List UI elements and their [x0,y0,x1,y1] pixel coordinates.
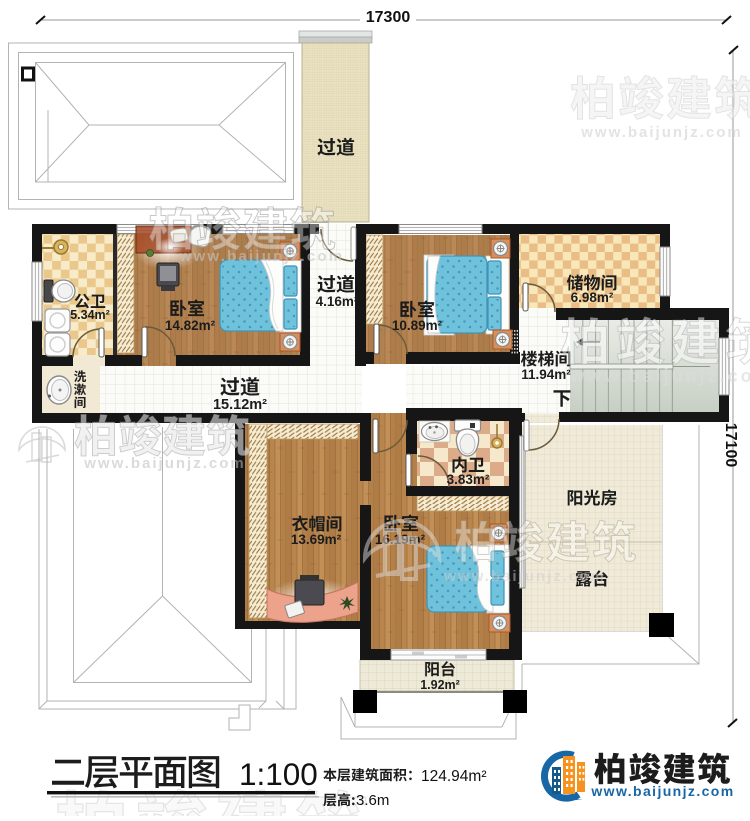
svg-text:11.94m²: 11.94m² [521,367,571,382]
svg-text:www.baijunjz.com: www.baijunjz.com [179,248,345,265]
svg-text:14.82m²: 14.82m² [165,318,216,333]
svg-text:124.94m²: 124.94m² [421,768,486,785]
svg-text:1.92m²: 1.92m² [420,678,460,692]
svg-text:3.6m: 3.6m [356,792,389,809]
svg-text:17100: 17100 [722,423,739,468]
svg-text:www.baijunjz.com: www.baijunjz.com [569,366,750,386]
svg-text:www.baijunjz.com: www.baijunjz.com [83,455,245,472]
svg-text:5.34m²: 5.34m² [70,308,110,322]
svg-text:www.baijunjz.com: www.baijunjz.com [443,568,605,585]
svg-text:4.16m²: 4.16m² [316,294,359,309]
svg-text:10.89m²: 10.89m² [392,318,443,333]
svg-text:6.98m²: 6.98m² [571,290,614,305]
svg-text:3.83m²: 3.83m² [447,472,490,487]
svg-text:13.69m²: 13.69m² [291,532,342,547]
svg-text:www.baijunjz.com: www.baijunjz.com [590,783,734,799]
svg-text:15.12m²: 15.12m² [213,397,267,413]
svg-text:www.baijunjz.com: www.baijunjz.com [580,124,742,141]
svg-text:1:100: 1:100 [239,756,318,792]
svg-text:17300: 17300 [366,9,411,26]
